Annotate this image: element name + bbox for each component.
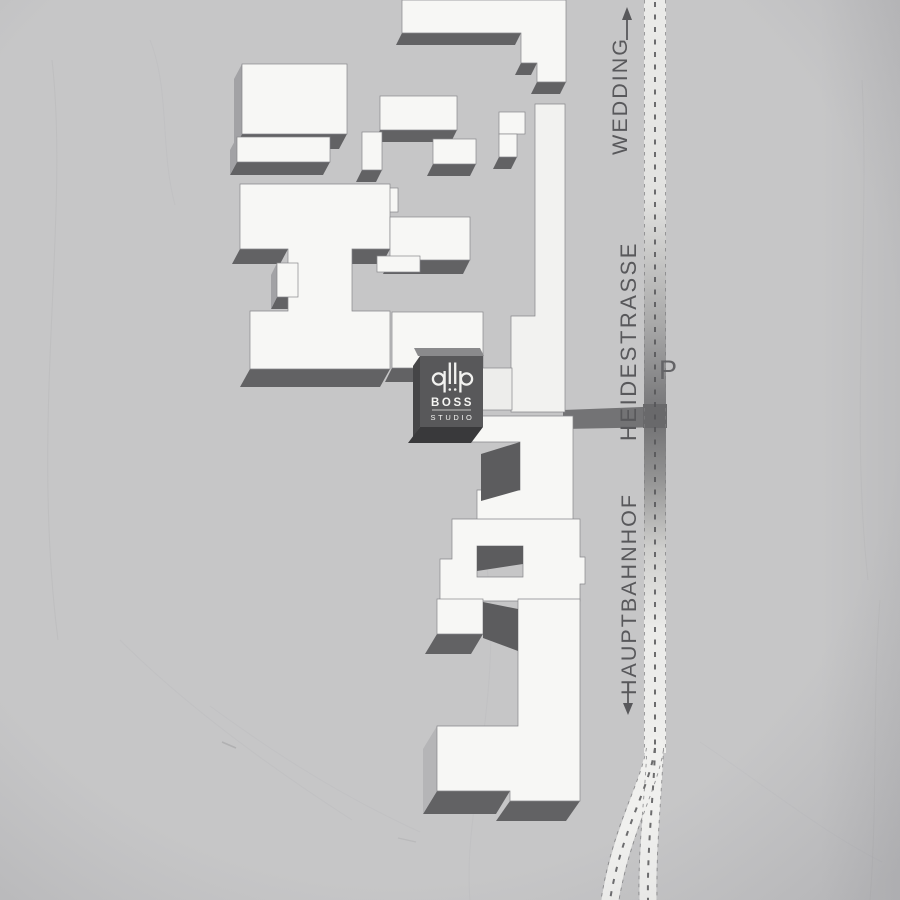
edge-shade-overlay	[820, 0, 900, 900]
vignette-overlay	[0, 0, 900, 900]
map-canvas: BOSS STUDIO WEDDING HEIDESTRASSE P HAUPT…	[0, 0, 900, 900]
map-stage: BOSS STUDIO WEDDING HEIDESTRASSE P HAUPT…	[0, 0, 900, 900]
